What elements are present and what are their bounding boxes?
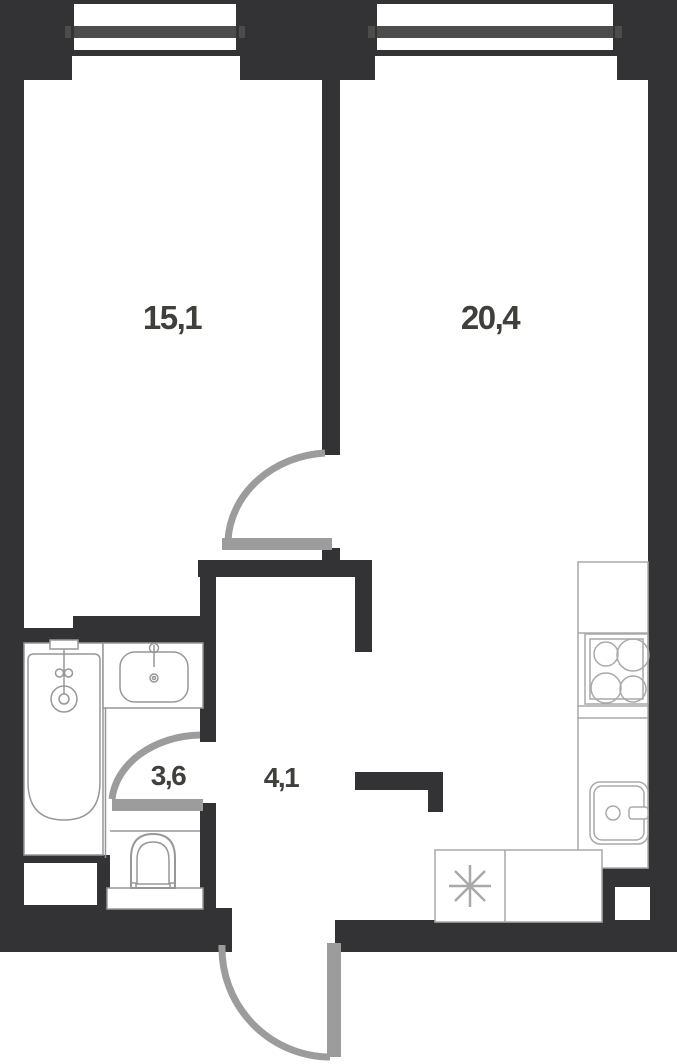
window-sash-bar xyxy=(375,26,613,38)
door-swing-bedroom xyxy=(228,453,325,540)
bathtub-mixer xyxy=(50,640,78,649)
kitchen-fixtures xyxy=(435,562,649,922)
floor-plan: 15,1 20,4 3,6 4,1 xyxy=(0,0,677,1064)
wall-bathroom-top-thick xyxy=(73,616,216,630)
window-frame-inner xyxy=(375,50,613,56)
window-frame-inner xyxy=(72,50,236,56)
wall-hallway-top xyxy=(198,560,372,577)
floor-plan-drawing xyxy=(0,0,677,1064)
window-sill-nub xyxy=(239,26,245,38)
wall-room-divider xyxy=(322,80,340,455)
room-area-label-bathroom: 3,6 xyxy=(139,762,197,790)
door-swing-entry xyxy=(222,945,330,1057)
window-left xyxy=(65,0,245,56)
window-sash-bar xyxy=(72,26,236,38)
window-frame-outer xyxy=(72,0,236,4)
toilet-seat xyxy=(137,842,169,884)
window-sill-nub xyxy=(615,26,622,38)
door-leaf-bathroom xyxy=(112,799,203,811)
window-right xyxy=(368,0,622,56)
washer-asterisk-icon xyxy=(449,865,491,907)
wall-left xyxy=(0,0,24,948)
wall-living-partition xyxy=(355,772,443,790)
doors xyxy=(112,453,341,1057)
niche-kitchen-duct xyxy=(615,887,650,920)
wall-top-center xyxy=(240,0,375,80)
niche-bottom-left xyxy=(24,863,97,905)
wall-hallway-right-stub xyxy=(355,560,372,652)
window-sill-nub xyxy=(368,26,375,38)
room-area-label-bedroom: 15,1 xyxy=(141,301,203,334)
room-area-label-living-kitchen: 20,4 xyxy=(457,301,523,334)
wall-divider-jamb xyxy=(322,548,340,562)
door-leaf-entry xyxy=(327,943,341,1057)
wall-bottom-left xyxy=(0,908,232,952)
wall-right xyxy=(648,0,677,952)
kitchen-sink-faucet xyxy=(629,807,648,819)
room-area-label-hallway: 4,1 xyxy=(252,764,310,792)
toilet-platform xyxy=(107,888,203,909)
wall-living-partition-stub xyxy=(428,790,443,812)
door-leaf-bedroom xyxy=(222,538,332,550)
window-sill-nub xyxy=(65,26,71,38)
window-frame-outer xyxy=(375,0,613,4)
